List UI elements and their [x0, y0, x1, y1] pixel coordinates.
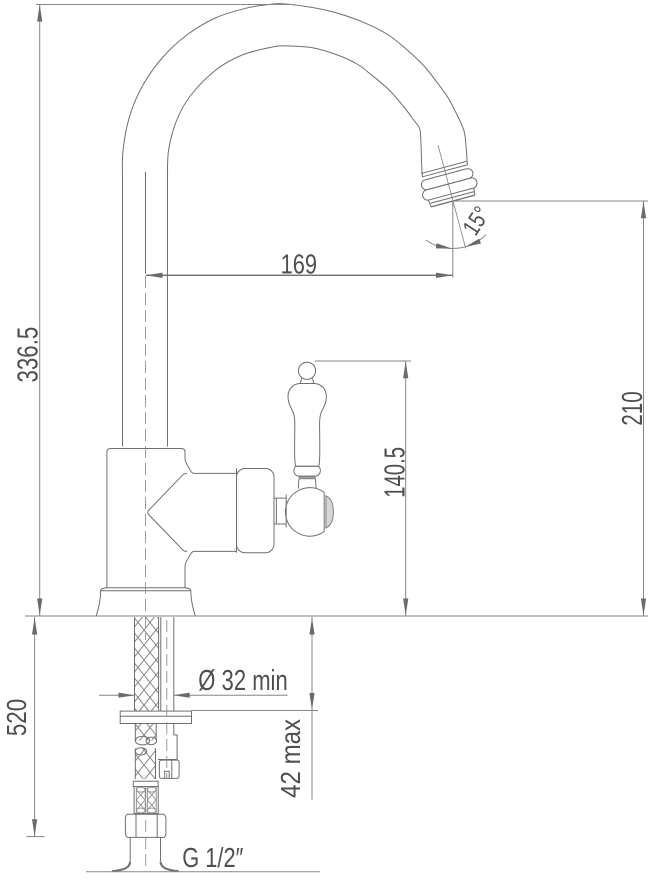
svg-text:169: 169	[281, 249, 317, 280]
svg-text:42 max: 42 max	[274, 719, 306, 798]
svg-text:210: 210	[618, 391, 649, 425]
svg-text:336.5: 336.5	[13, 327, 44, 383]
svg-text:Ø 32 min: Ø 32 min	[198, 665, 287, 697]
svg-text:G 1/2″: G 1/2″	[182, 842, 243, 873]
svg-text:520: 520	[2, 699, 33, 736]
svg-text:15°: 15°	[458, 202, 496, 240]
svg-text:140.5: 140.5	[379, 447, 411, 498]
